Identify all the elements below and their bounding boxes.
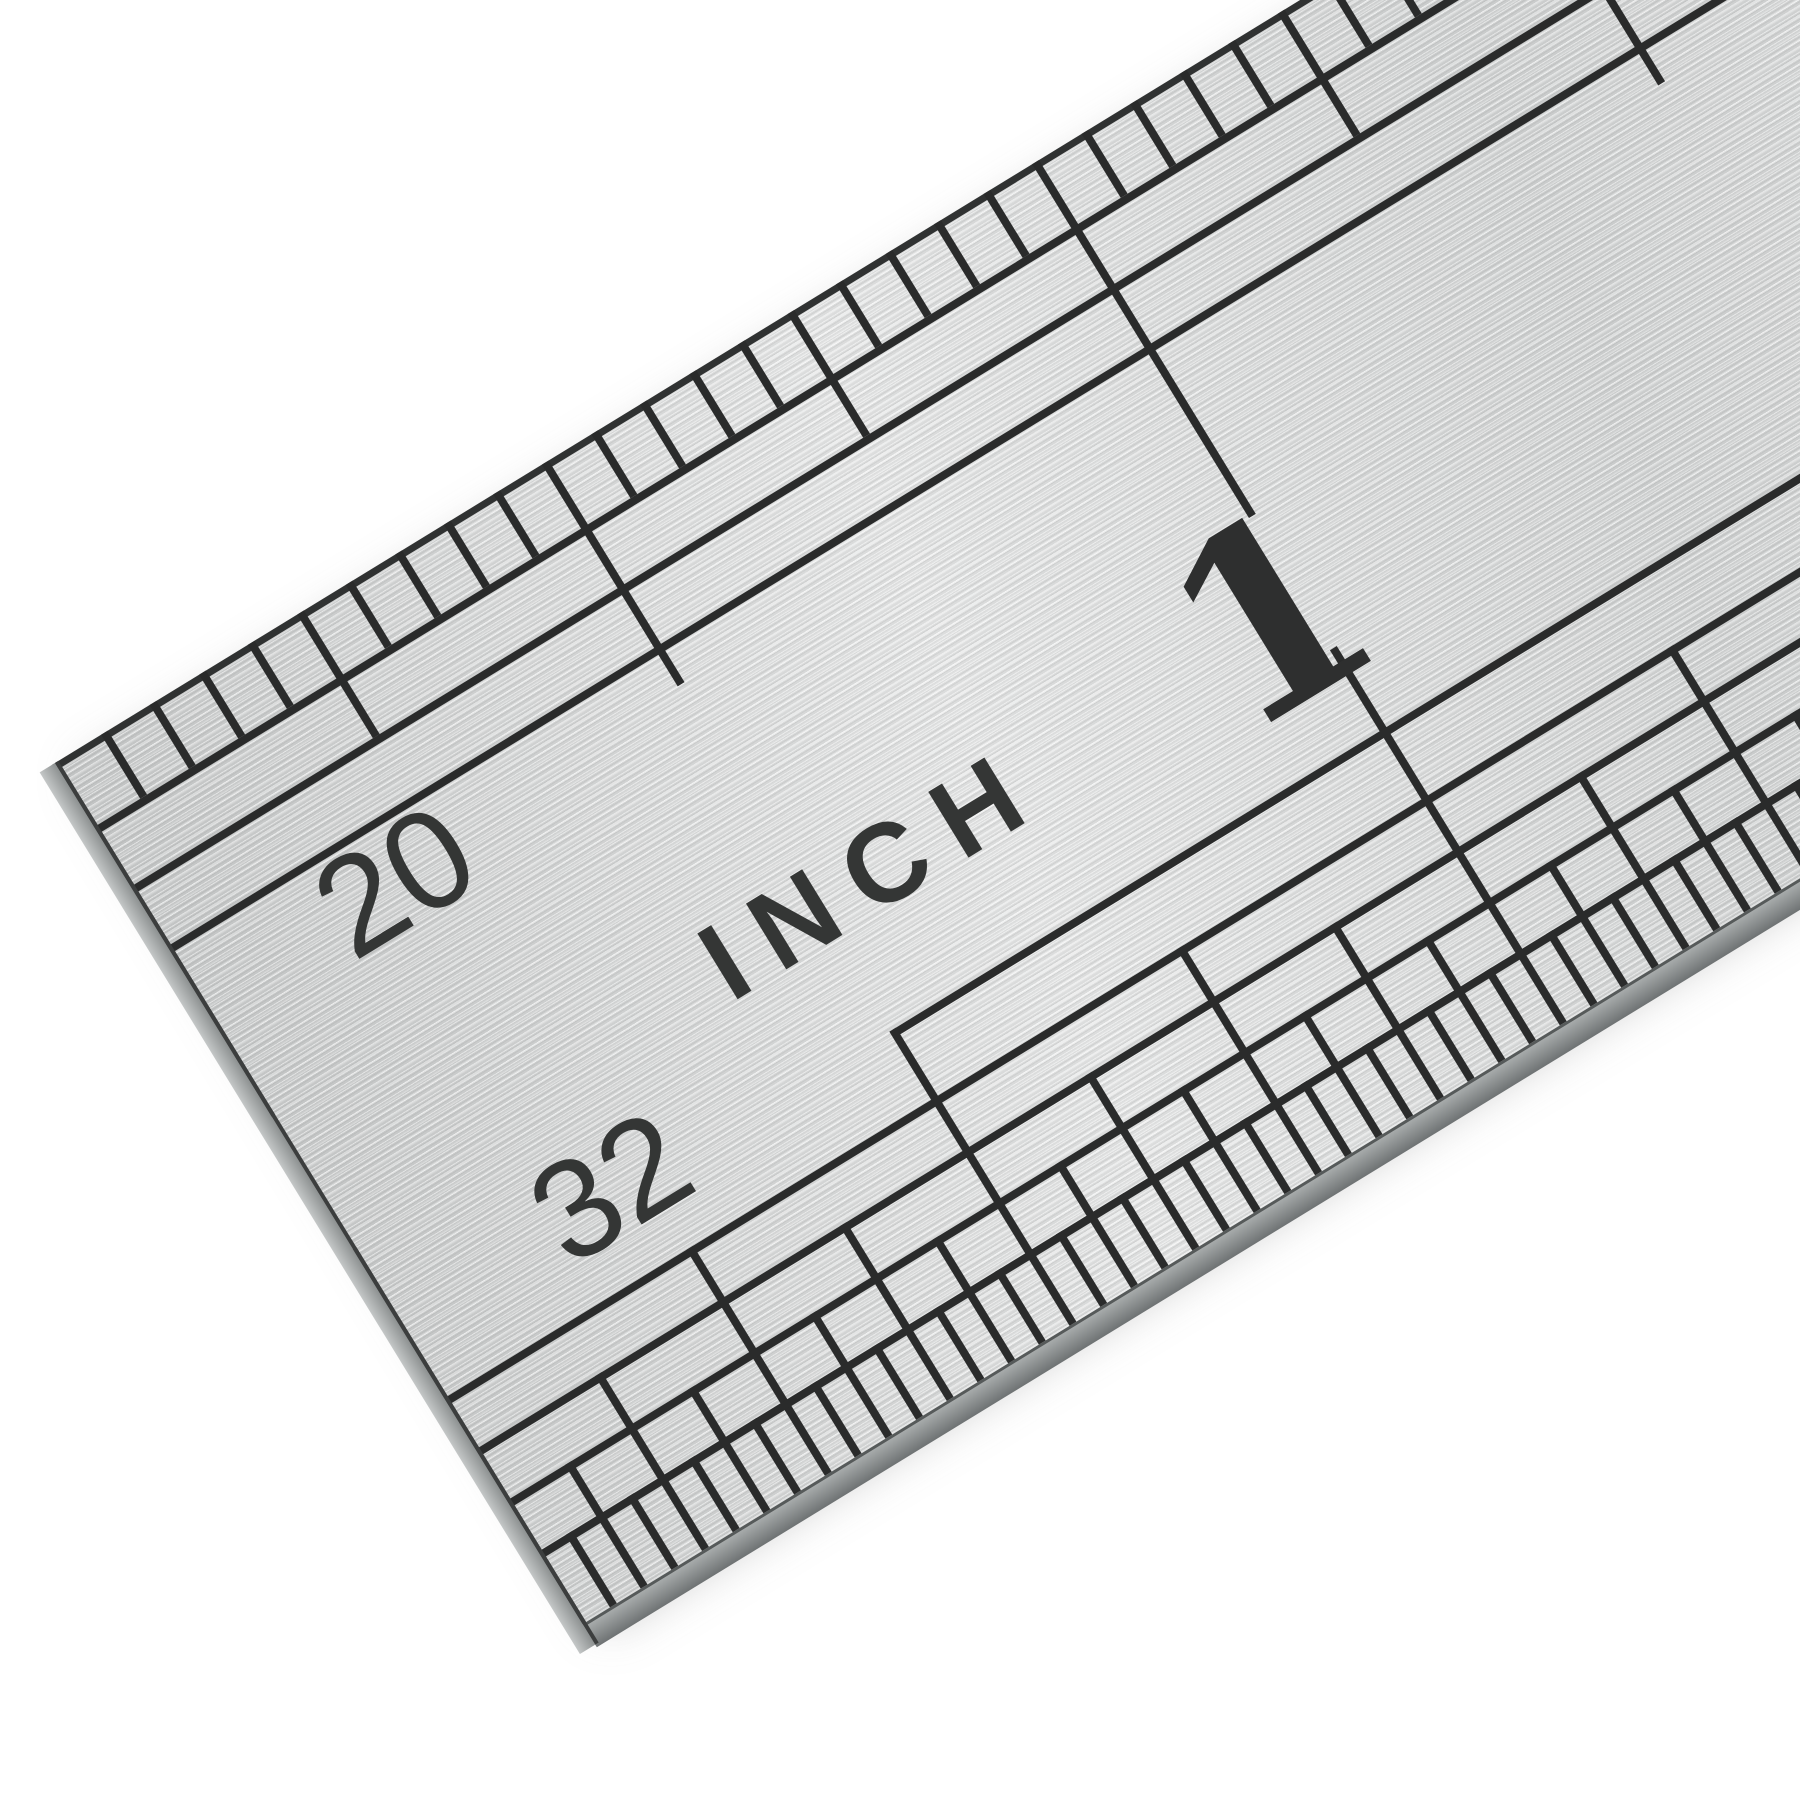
- top-scale-tick-minor: [493, 491, 539, 559]
- top-scale-label: 20: [292, 781, 498, 982]
- top-scale-tick-minor: [591, 430, 637, 498]
- top-scale-tick-quarter: [297, 611, 380, 739]
- bottom-scale-tick-minor: [688, 1456, 739, 1533]
- bottom-scale-tick-minor: [1362, 1043, 1413, 1120]
- top-scale-tick-minor: [1130, 100, 1176, 168]
- bottom-scale-tick-minor: [1730, 817, 1781, 894]
- bottom-scale-tick-sixteenth: [810, 1311, 893, 1439]
- bottom-scale-tick-minor: [627, 1493, 678, 1570]
- top-scale-tick-minor: [346, 581, 392, 649]
- top-scale-tick-minor: [150, 701, 196, 769]
- bottom-scale-tick-sixteenth: [1791, 710, 1800, 838]
- bottom-scale-tick-sixteenth: [933, 1236, 1016, 1364]
- bottom-scale-tick-sixteenth: [565, 1461, 648, 1589]
- bottom-scale-tick-minor: [1669, 855, 1720, 932]
- bottom-scale-tick-minor: [1117, 1193, 1168, 1270]
- top-scale-tick-minor: [1375, 0, 1421, 18]
- bottom-scale-tick-minor: [1301, 1080, 1352, 1157]
- top-scale-tick-minor: [836, 280, 882, 348]
- bottom-scale-tick-minor: [872, 1343, 923, 1420]
- top-scale-tick-inch: [1032, 160, 1256, 518]
- bottom-scale-tick-sixteenth: [1668, 785, 1751, 913]
- bottom-scale-tick-sixteenth: [1423, 935, 1506, 1063]
- bottom-scale-tick-minor: [566, 1531, 617, 1608]
- ruler-face: 20 32 INCH 1: [55, 0, 1800, 1624]
- bottom-scale-tick-minor: [1424, 1005, 1475, 1082]
- top-scale-tick-minor: [934, 220, 980, 288]
- bottom-scale-tick-minor: [1178, 1155, 1229, 1232]
- top-scale-tick-minor: [444, 521, 490, 589]
- top-scale-tick-minor: [248, 641, 294, 709]
- product-photo: 20 32 INCH 1: [0, 0, 1800, 1800]
- bottom-scale-tick-minor: [749, 1418, 800, 1495]
- top-scale-tick-minor: [1081, 130, 1127, 198]
- bottom-scale-tick-minor: [811, 1381, 862, 1458]
- top-scale-tick-minor: [689, 370, 735, 438]
- top-scale-tick-minor: [640, 400, 686, 468]
- steel-ruler: 20 32 INCH 1: [55, 0, 1800, 1624]
- top-scale-tick-minor: [983, 190, 1029, 258]
- bottom-scale-tick-minor: [1485, 968, 1536, 1045]
- top-scale-tick-minor: [738, 340, 784, 408]
- bottom-scale-tick-sixteenth: [1178, 1085, 1261, 1213]
- bottom-scale-tick-sixteenth: [1300, 1010, 1383, 1138]
- top-scale-tick-minor: [101, 731, 147, 799]
- bottom-scale-tick-minor: [1546, 930, 1597, 1007]
- top-scale-tick-minor: [1326, 0, 1372, 48]
- bottom-scale-tick-minor: [933, 1305, 984, 1382]
- inch-unit-label: INCH: [682, 726, 1063, 1019]
- top-scale-tick-half: [542, 460, 685, 686]
- top-scale-tick-minor: [1179, 70, 1225, 138]
- top-scale-tick-minor: [395, 551, 441, 619]
- bottom-scale-tick-sixteenth: [1055, 1160, 1138, 1288]
- top-scale-bracket-line: [94, 0, 1800, 834]
- top-scale-tick-quarter: [787, 310, 870, 438]
- top-scale-tick-minor: [199, 671, 245, 739]
- bottom-scale-tick-minor: [995, 1268, 1046, 1345]
- top-scale-tick-minor: [1228, 40, 1274, 108]
- bottom-scale-tick-sixteenth: [687, 1386, 770, 1514]
- top-scale-tick-minor: [885, 250, 931, 318]
- bottom-scale-tick-sixteenth: [1545, 860, 1628, 988]
- bottom-scale-tick-minor: [1056, 1230, 1107, 1307]
- top-scale-20ths: [55, 0, 1800, 763]
- bottom-scale-bracket-line: [893, 0, 1800, 1036]
- top-scale-tick-quarter: [1277, 10, 1360, 138]
- bottom-scale-tick-minor: [1240, 1118, 1291, 1195]
- inch-number-1: 1: [1128, 463, 1413, 773]
- bottom-scale-tick-minor: [1607, 892, 1658, 969]
